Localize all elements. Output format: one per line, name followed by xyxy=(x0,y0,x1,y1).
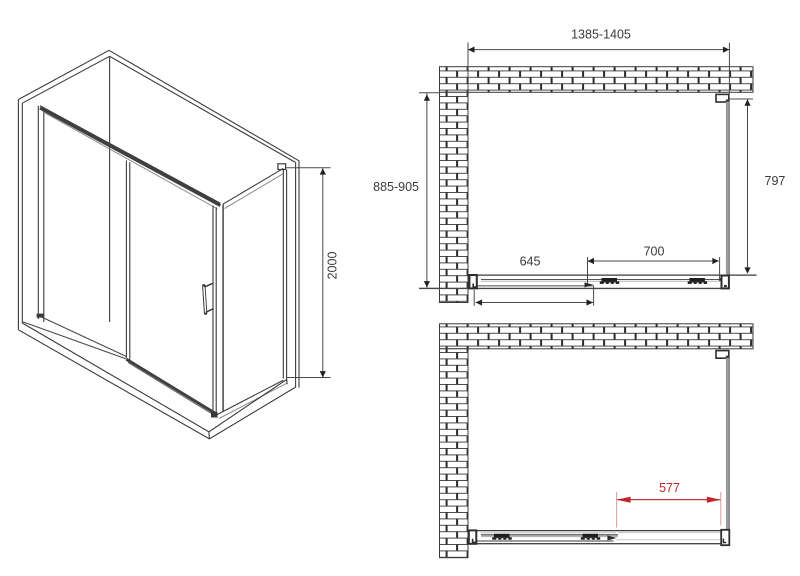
svg-text:1385-1405: 1385-1405 xyxy=(571,28,631,42)
svg-text:885-905: 885-905 xyxy=(373,180,419,194)
svg-text:577: 577 xyxy=(659,481,680,495)
svg-text:797: 797 xyxy=(765,174,786,188)
svg-text:700: 700 xyxy=(644,245,665,259)
svg-text:645: 645 xyxy=(520,255,541,269)
svg-text:2000: 2000 xyxy=(326,252,340,280)
